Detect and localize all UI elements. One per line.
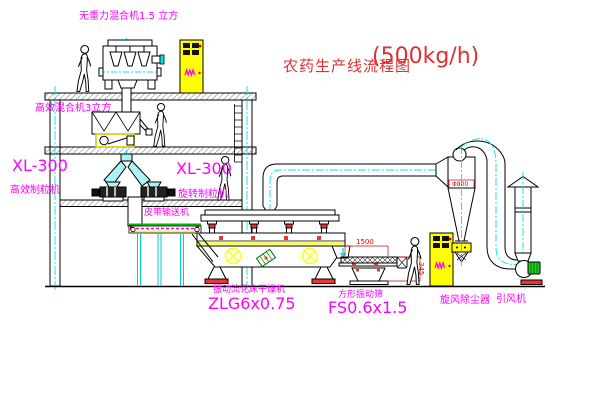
label-fan: 引风机: [496, 295, 526, 305]
label-dryer-model: ZLG6x0.75: [208, 296, 296, 312]
person-ground: [407, 237, 421, 284]
belt-conveyor: [129, 225, 201, 287]
label-left-granulator-name: 高效制粒机: [10, 186, 60, 196]
label-top-mixer: 无重力混合机1.5 立方: [79, 12, 178, 22]
y-splitter: [104, 154, 150, 186]
label-cyclone: 旋风除尘器: [440, 296, 490, 306]
granulator-discharge-duct: [128, 197, 142, 226]
label-belt-conveyor: 皮带输送机: [144, 209, 189, 218]
label-mid-granulator-model: XL-300: [176, 161, 232, 177]
label-mid-granulator-name: 旋转制粒机: [178, 190, 228, 200]
induced-draft-fan: [516, 261, 543, 285]
label-second-mixer: 高效混合机3立方: [35, 104, 111, 114]
control-cabinet-top: [180, 40, 203, 93]
control-cabinet-right: [430, 233, 453, 286]
fluid-bed-dryer: [192, 164, 446, 284]
person-second-floor: [154, 103, 167, 146]
dim-screen-height: 345: [417, 262, 425, 275]
label-screen-model: FS0.6x1.5: [328, 300, 407, 316]
person-top-floor: [77, 45, 91, 91]
dryer-mounts: [208, 221, 329, 233]
page-title-capacity: (500kg/h): [372, 44, 479, 69]
second-mixer: [92, 112, 152, 147]
dim-cyclone-note: Φ800: [452, 181, 468, 188]
label-left-granulator-model: XL-300: [12, 158, 68, 174]
dim-screen-length: 1500: [356, 238, 374, 246]
diagram-root: 无重力混合机1.5 立方 高效混合机3立方 XL-300 高效制粒机 XL-30…: [0, 0, 600, 403]
